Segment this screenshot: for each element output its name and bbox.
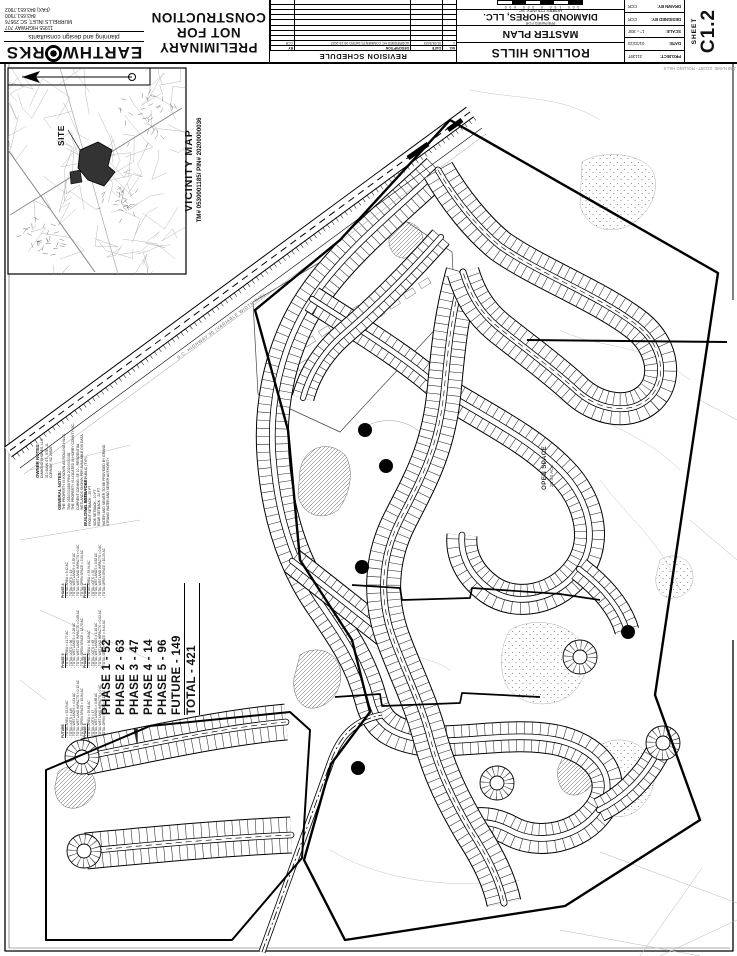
phase-detail-block: PHASE 1- TOTAL AREA = 33.94 AC- TOTAL LO… bbox=[84, 536, 106, 598]
revision-cell bbox=[442, 25, 456, 30]
preliminary-stamp: PRELIMINARY NOT FOR CONSTRUCTION bbox=[148, 0, 270, 62]
revision-cell bbox=[294, 0, 410, 4]
date-label: DATE: bbox=[669, 41, 681, 46]
revision-cell: DESCRIPTION bbox=[294, 45, 410, 50]
revision-cell bbox=[442, 30, 456, 35]
revision-cell bbox=[410, 9, 442, 14]
firm-address: 11955 HIGHWAY 707 MURRELLS INLET, SC 295… bbox=[0, 6, 148, 30]
revision-cell bbox=[410, 14, 442, 19]
revision-cell bbox=[270, 9, 294, 14]
firm-fax: (FAX) 843.651.7902 bbox=[5, 6, 143, 12]
revision-cell bbox=[410, 35, 442, 40]
revision-cell bbox=[270, 19, 294, 24]
title-block-strip: EARTHWRKS planning and design consultant… bbox=[0, 0, 737, 64]
setback-notes: BUILDING SETBACKS:FRONT SETBACK - 25 FTS… bbox=[84, 398, 111, 526]
revision-cell: CCR bbox=[270, 40, 294, 45]
revision-cell bbox=[270, 0, 294, 4]
phase-detail-block: FUTURE- TOTAL AREA = 52.13 AC- TOTAL LOT… bbox=[62, 676, 84, 738]
revision-cell: 01/31/2023 bbox=[410, 40, 442, 45]
sheet-number: C1.2 bbox=[698, 0, 720, 62]
drawn-by-value: CCR bbox=[628, 4, 637, 9]
revision-table: NO.DATEDESCRIPTIONBY101/31/2023ADDRESSED… bbox=[270, 0, 456, 50]
firm-logo: EARTHWRKS bbox=[0, 43, 148, 62]
firm-name-right: RKS bbox=[6, 43, 45, 62]
drawn-by-label: DRAWN BY: bbox=[657, 4, 681, 9]
phase-summary-line: PHASE 2 - 63 bbox=[114, 583, 128, 715]
revision-cell bbox=[270, 14, 294, 19]
revision-cell bbox=[410, 0, 442, 4]
project-title-block: ROLLING HILLS MASTER PLAN PREPARED FOR D… bbox=[457, 0, 625, 62]
firm-tagline: planning and design consultants bbox=[4, 31, 144, 42]
scale-label: SCALE: bbox=[665, 29, 681, 34]
sheet-title: MASTER PLAN bbox=[457, 25, 624, 42]
sheet-label: SHEET bbox=[691, 0, 698, 62]
note-line: CONWAY, SC 29526 bbox=[49, 360, 53, 478]
phase-detail-line: - TOTAL OPEN SPACE = 12.70 AC bbox=[81, 606, 85, 668]
client-name: DIAMOND SHORES, LLC. bbox=[457, 13, 624, 20]
project-number: 21139T bbox=[628, 54, 642, 59]
phase-detail-block: PHASE 5- TOTAL AREA = 41.77 AC- TOTAL LO… bbox=[62, 606, 84, 668]
phase-summary-line: PHASE 4 - 14 bbox=[142, 583, 156, 715]
vicinity-map-title: VICINITY MAP bbox=[183, 98, 196, 243]
scale-value: 1" = 300' bbox=[628, 29, 644, 34]
revision-cell bbox=[294, 14, 410, 19]
phase-detail-line: - TOTAL OPEN SPACE = 2.91 AC bbox=[81, 536, 85, 598]
revision-cell bbox=[270, 4, 294, 9]
note-line: STRAND WATER AND SEWER AUTHORITY bbox=[106, 398, 110, 526]
revision-cell bbox=[442, 4, 456, 9]
revision-cell bbox=[294, 4, 410, 9]
client-location: HORRY COUNTY, SC bbox=[457, 9, 624, 13]
phase-summary-line: FUTURE - 149 bbox=[170, 583, 185, 715]
revision-cell bbox=[410, 4, 442, 9]
sheet-number-block: SHEET C1.2 bbox=[685, 0, 737, 62]
firm-name-left: EARTHW bbox=[62, 43, 143, 62]
firm-phone: 843.651.7900 bbox=[5, 12, 143, 18]
designed-by-label: DESIGNED BY: bbox=[651, 17, 681, 22]
revision-cell bbox=[270, 25, 294, 30]
revision-cell bbox=[294, 9, 410, 14]
revision-cell bbox=[294, 35, 410, 40]
phase-detail-line: - TOTAL OPEN SPACE = 7.12 AC bbox=[103, 676, 107, 738]
revision-cell: BY bbox=[270, 45, 294, 50]
phase-summary-line: TOTAL - 421 bbox=[185, 583, 200, 715]
revision-cell bbox=[442, 35, 456, 40]
firm-logo-block: EARTHWRKS planning and design consultant… bbox=[0, 0, 148, 62]
revision-cell bbox=[294, 25, 410, 30]
owner-notes: OWNER NOTES:DIAMOND SHORES, LLC310 MAIN … bbox=[36, 360, 56, 478]
revision-cell bbox=[442, 14, 456, 19]
revision-cell bbox=[442, 19, 456, 24]
revision-cell bbox=[270, 35, 294, 40]
preliminary-line2: NOT FOR bbox=[148, 25, 269, 40]
phase-detail-block: PHASE 4- TOTAL AREA = 9.42 AC- TOTAL LOT… bbox=[62, 536, 84, 598]
job-name-note: JOB NAME: 21139T - ROLLING HILLS bbox=[652, 66, 736, 71]
revision-cell: 1 bbox=[442, 40, 456, 45]
drawing-info-block: PROJECT:21139T DATE:01/31/23 SCALE:1" = … bbox=[625, 0, 685, 62]
revision-schedule: REVISION SCHEDULE NO.DATEDESCRIPTIONBY10… bbox=[270, 0, 457, 62]
revision-cell bbox=[442, 9, 456, 14]
project-label: PROJECT: bbox=[660, 54, 681, 59]
phase-detail-line: - TOTAL OPEN SPACE = 10.25 AC bbox=[103, 536, 107, 598]
client-block: PREPARED FOR DIAMOND SHORES, LLC. HORRY … bbox=[457, 9, 624, 25]
project-name: ROLLING HILLS bbox=[457, 42, 624, 62]
date-value: 01/31/23 bbox=[628, 41, 644, 46]
phase-detail-block: PHASE 3- TOTAL AREA = 25.61 AC- TOTAL LO… bbox=[84, 676, 106, 738]
revision-cell bbox=[410, 19, 442, 24]
plan-sheet: EARTHWRKS planning and design consultant… bbox=[0, 0, 737, 956]
vicinity-site-label: SITE bbox=[56, 114, 67, 146]
phase-summary-line: PHASE 3 - 47 bbox=[128, 583, 142, 715]
revision-cell bbox=[270, 30, 294, 35]
open-space-label: OPEN SPACE bbox=[541, 432, 550, 490]
open-space-acreage: 20.03 AC± bbox=[550, 435, 557, 487]
vicinity-map bbox=[0, 38, 248, 284]
gear-icon bbox=[45, 45, 62, 62]
revision-cell bbox=[442, 0, 456, 4]
graphic-scale-bar: 300 150 0 300 600 bbox=[457, 0, 624, 9]
phase-detail-line: - TOTAL OPEN SPACE = 8.44 AC bbox=[103, 606, 107, 668]
revision-cell bbox=[410, 25, 442, 30]
vicinity-map-subtitle: TM# 0530001185/ PIN# 20200000036 bbox=[196, 94, 205, 246]
phase-summary-line: PHASE 5 - 96 bbox=[156, 583, 170, 715]
firm-address-line2: MURRELLS INLET, SC 29576 bbox=[5, 18, 143, 24]
preliminary-line1: PRELIMINARY bbox=[148, 40, 269, 55]
scale-bar-labels: 300 150 0 300 600 bbox=[457, 5, 624, 9]
revision-cell: ADDRESSED HC COMMENTS DATED 09-19-2022 bbox=[294, 40, 410, 45]
phase-detail-line: - TOTAL OPEN SPACE = 15.84 AC bbox=[81, 676, 85, 738]
designed-by-value: CCR bbox=[628, 17, 637, 22]
phase-summary-list: PHASE 1 - 52PHASE 2 - 63PHASE 3 - 47PHAS… bbox=[100, 583, 200, 715]
revision-cell bbox=[294, 30, 410, 35]
revision-caption: REVISION SCHEDULE bbox=[270, 50, 456, 62]
revision-cell bbox=[294, 19, 410, 24]
firm-address-line1: 11955 HIGHWAY 707 bbox=[5, 24, 143, 30]
phase-detail-block: PHASE 2- TOTAL AREA = 30.18 AC- TOTAL LO… bbox=[84, 606, 106, 668]
revision-cell: DATE bbox=[410, 45, 442, 50]
revision-cell: NO. bbox=[442, 45, 456, 50]
preliminary-line3: CONSTRUCTION bbox=[148, 10, 269, 25]
revision-cell bbox=[410, 30, 442, 35]
